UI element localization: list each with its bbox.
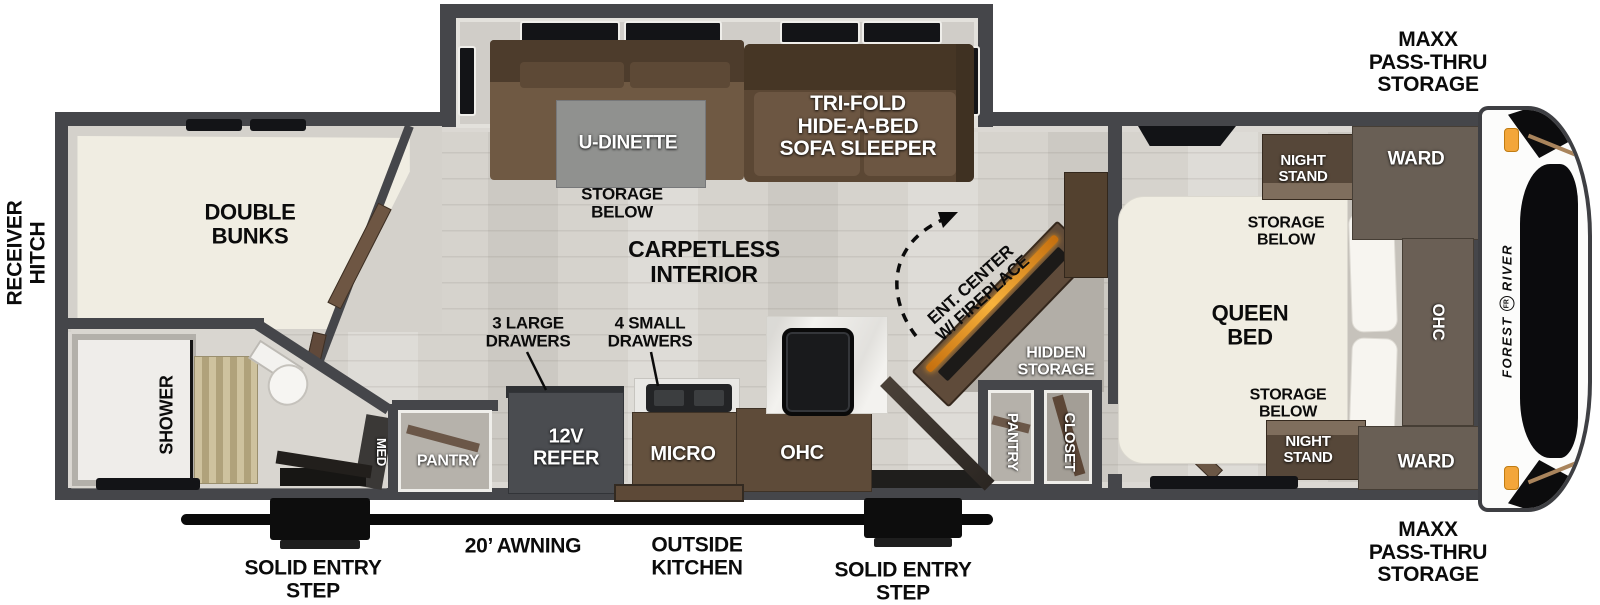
hidden-storage-label: HIDDEN STORAGE: [1018, 345, 1095, 380]
awning-label: 20’ AWNING: [465, 536, 581, 559]
ward-top-label: WARD: [1388, 150, 1445, 171]
med-label: MED: [374, 438, 388, 466]
dinette-storage-below-label: STORAGE BELOW: [581, 186, 663, 223]
bedroom-ohc-label: OHC: [1429, 304, 1447, 341]
refer-label: 12V REFER: [533, 426, 599, 469]
bed-storage-below-top-label: STORAGE BELOW: [1248, 215, 1325, 250]
u-dinette-label: U-DINETTE: [579, 134, 678, 155]
solid-entry-step-right-label: SOLID ENTRY STEP: [834, 559, 971, 604]
forest-river-logo-icon: FR: [1500, 296, 1515, 311]
cap-windshield-decal: [1520, 164, 1578, 458]
brand-text-first: FOREST: [1500, 316, 1515, 378]
receiver-hitch-label: RECEIVER HITCH: [4, 201, 49, 306]
bed-storage-below-bottom-label: STORAGE BELOW: [1250, 387, 1327, 422]
micro-label: MICRO: [650, 444, 715, 466]
trifold-sofa-label: TRI-FOLD HIDE-A-BED SOFA SLEEPER: [780, 93, 937, 161]
rv-floorplan: FOREST FR RIVER RECEIVER HITCH MAXX PASS…: [0, 0, 1600, 605]
outside-kitchen-label: OUTSIDE KITCHEN: [651, 534, 742, 579]
ward-bottom-label: WARD: [1398, 453, 1455, 474]
annotation-lines: [0, 0, 1600, 605]
hall-pantry-label: PANTRY: [1004, 413, 1020, 471]
carpetless-interior-label: CARPETLESS INTERIOR: [628, 237, 780, 287]
marker-light-bottom: [1504, 466, 1519, 490]
marker-light-top: [1504, 128, 1519, 152]
brand-text-last: RIVER: [1500, 244, 1515, 291]
maxx-storage-top-label: MAXX PASS-THRU STORAGE: [1369, 29, 1487, 97]
night-stand-top-label: NIGHT STAND: [1278, 153, 1327, 185]
front-cap: FOREST FR RIVER: [1478, 106, 1592, 512]
solid-entry-step-left-label: SOLID ENTRY STEP: [244, 557, 381, 602]
closet-label: CLOSET: [1061, 412, 1077, 471]
small-drawers-pointer-line: [651, 352, 658, 386]
double-bunks-label: DOUBLE BUNKS: [204, 200, 295, 248]
queen-bed-label: QUEEN BED: [1212, 301, 1289, 349]
rear-pantry-label: PANTRY: [417, 452, 479, 469]
kitchen-ohc-label: OHC: [780, 443, 824, 465]
large-drawers-pointer-line: [527, 352, 546, 390]
night-stand-bottom-label: NIGHT STAND: [1283, 434, 1332, 466]
large-drawers-label: 3 LARGE DRAWERS: [486, 315, 571, 352]
shower-label: SHOWER: [157, 375, 176, 454]
maxx-storage-bottom-label: MAXX PASS-THRU STORAGE: [1369, 519, 1487, 587]
forest-river-brand: FOREST FR RIVER: [1500, 244, 1515, 378]
tv-swivel-arrowhead-icon: [938, 212, 958, 228]
small-drawers-label: 4 SMALL DRAWERS: [608, 315, 693, 352]
